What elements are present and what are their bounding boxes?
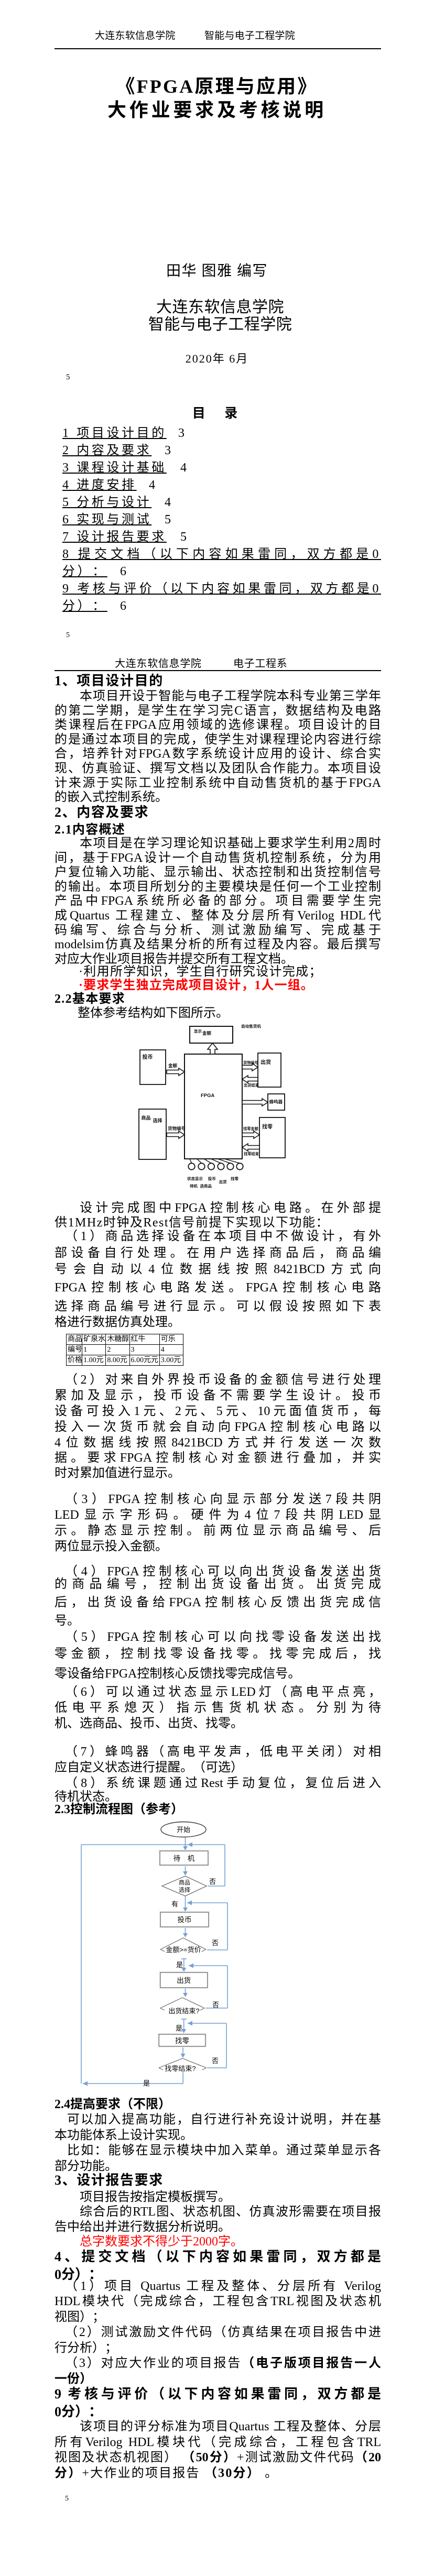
svg-text:出货结束: 出货结束 xyxy=(244,1083,259,1088)
svg-text:金额>=货价: 金额>=货价 xyxy=(166,1946,201,1954)
svg-text:FPGA: FPGA xyxy=(201,1093,215,1099)
svg-text:投币: 投币 xyxy=(178,1916,192,1924)
svg-text:有: 有 xyxy=(171,1900,178,1908)
svg-text:是: 是 xyxy=(143,2079,150,2087)
svg-text:投币: 投币 xyxy=(208,1176,216,1181)
svg-text:货物编号: 货物编号 xyxy=(243,1060,258,1065)
svg-text:商品: 商品 xyxy=(179,1879,190,1886)
svg-text:货物编号: 货物编号 xyxy=(168,1126,186,1131)
svg-text:出货: 出货 xyxy=(177,1976,191,1985)
svg-text:出货结束?: 出货结束? xyxy=(168,2007,199,2015)
svg-text:否: 否 xyxy=(209,1878,216,1886)
svg-text:找零结束: 找零结束 xyxy=(244,1152,259,1156)
svg-text:否: 否 xyxy=(212,1939,219,1947)
svg-text:自动售货机: 自动售货机 xyxy=(241,1024,261,1029)
svg-text:选商品: 选商品 xyxy=(200,1183,212,1189)
svg-text:蜂鸣器: 蜂鸣器 xyxy=(269,1099,283,1104)
svg-text:否: 否 xyxy=(212,2001,219,2009)
svg-text:显示: 显示 xyxy=(194,1029,202,1034)
svg-text:待机: 待机 xyxy=(190,1183,198,1189)
svg-text:商品: 商品 xyxy=(142,1115,151,1121)
svg-text:找零: 找零 xyxy=(175,2037,189,2045)
svg-text:选择: 选择 xyxy=(153,1117,162,1123)
svg-text:开始: 开始 xyxy=(177,1826,190,1834)
svg-text:状态显示: 状态显示 xyxy=(187,1176,203,1181)
svg-text:出货: 出货 xyxy=(261,1059,271,1066)
svg-text:金额: 金额 xyxy=(168,1063,178,1068)
svg-text:找零: 找零 xyxy=(231,1176,238,1181)
svg-text:待 机: 待 机 xyxy=(173,1855,195,1862)
svg-text:找零: 找零 xyxy=(262,1123,273,1130)
svg-text:金额: 金额 xyxy=(202,1031,212,1036)
svg-text:找零金额: 找零金额 xyxy=(243,1126,259,1131)
svg-text:选择: 选择 xyxy=(179,1886,190,1893)
svg-text:出货: 出货 xyxy=(219,1179,227,1185)
svg-text:否: 否 xyxy=(212,2057,219,2065)
svg-text:是: 是 xyxy=(176,2024,182,2032)
svg-text:是: 是 xyxy=(176,1961,183,1969)
svg-text:投币: 投币 xyxy=(143,1054,153,1060)
svg-text:找零结束?: 找零结束? xyxy=(165,2065,196,2073)
